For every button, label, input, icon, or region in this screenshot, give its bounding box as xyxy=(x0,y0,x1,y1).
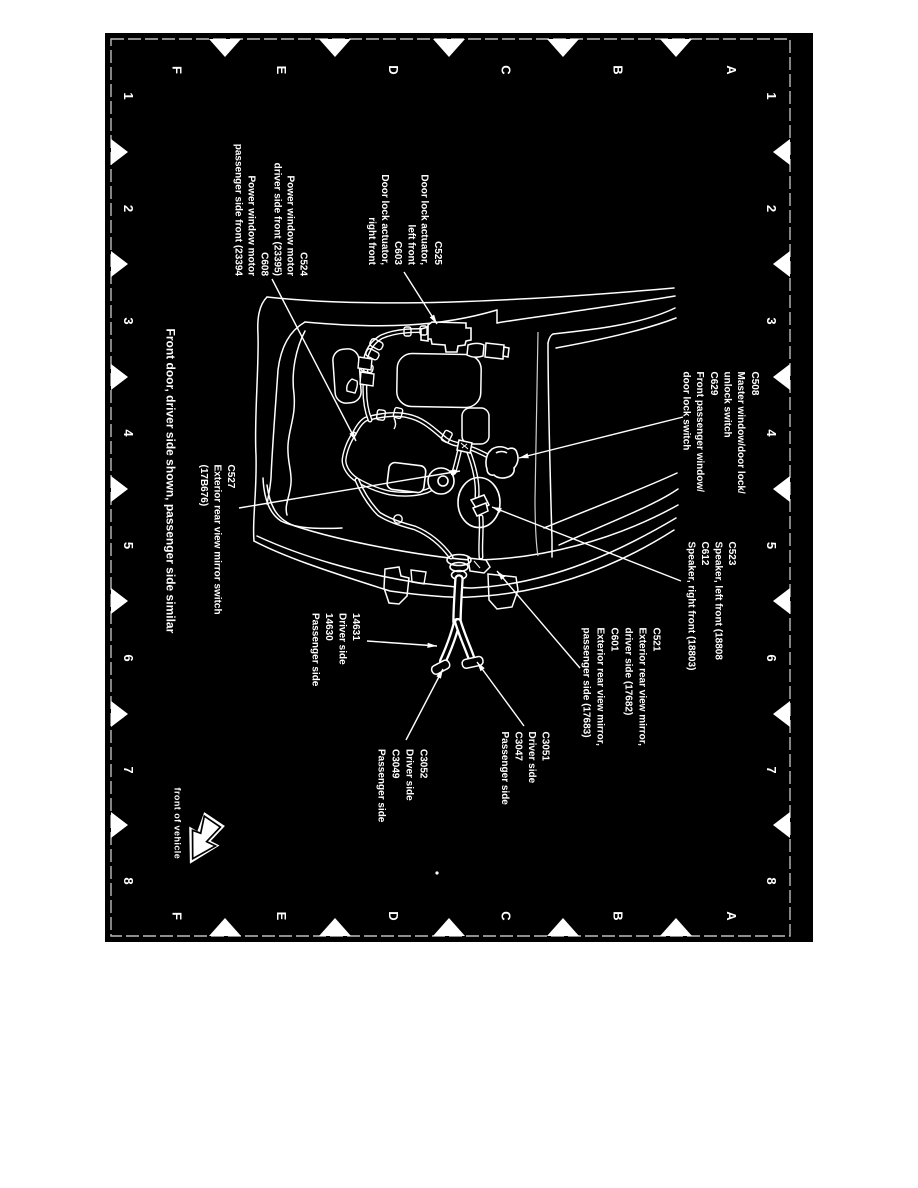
svg-text:4: 4 xyxy=(764,429,779,437)
svg-text:passenger side front (23394: passenger side front (23394 xyxy=(233,144,244,277)
svg-text:C525: C525 xyxy=(432,241,443,265)
svg-text:1: 1 xyxy=(121,92,136,99)
svg-text:4: 4 xyxy=(121,429,136,437)
svg-text:door lock switch: door lock switch xyxy=(680,372,691,451)
svg-text:C3047: C3047 xyxy=(512,732,523,762)
svg-text:A: A xyxy=(724,911,739,921)
svg-text:passenger side (17683): passenger side (17683) xyxy=(580,628,591,738)
svg-text:right front: right front xyxy=(366,217,377,265)
svg-text:C601: C601 xyxy=(608,628,619,652)
svg-text:Door lock actuator,: Door lock actuator, xyxy=(379,174,390,265)
svg-text:C: C xyxy=(499,911,514,921)
svg-text:left front: left front xyxy=(405,224,416,265)
svg-text:C524: C524 xyxy=(298,252,309,276)
svg-text:8: 8 xyxy=(121,877,136,884)
svg-text:A: A xyxy=(724,65,739,75)
svg-text:B: B xyxy=(611,65,626,74)
svg-text:Driver side: Driver side xyxy=(526,732,537,784)
svg-text:C3049: C3049 xyxy=(390,749,401,779)
svg-text:6: 6 xyxy=(764,654,779,661)
svg-text:C508: C508 xyxy=(749,372,760,396)
svg-text:Door lock actuator,: Door lock actuator, xyxy=(419,174,430,265)
svg-text:driver side front (23395): driver side front (23395) xyxy=(272,163,283,276)
svg-text:E: E xyxy=(274,66,289,75)
svg-text:7: 7 xyxy=(764,766,779,773)
svg-text:Front door, driver side shown,: Front door, driver side shown, passenger… xyxy=(163,329,177,634)
svg-text:D: D xyxy=(386,65,401,74)
svg-text:14630: 14630 xyxy=(323,613,334,641)
svg-text:8: 8 xyxy=(764,877,779,884)
svg-text:Exterior rear view mirror,: Exterior rear view mirror, xyxy=(594,628,605,747)
svg-text:C612: C612 xyxy=(699,542,710,566)
svg-text:2: 2 xyxy=(764,205,779,212)
svg-text:Driver side: Driver side xyxy=(404,749,415,801)
svg-text:C527: C527 xyxy=(225,465,236,489)
svg-text:front of vehicle: front of vehicle xyxy=(173,788,183,860)
svg-text:unlock switch: unlock switch xyxy=(722,372,733,438)
svg-text:6: 6 xyxy=(121,654,136,661)
svg-text:Front passenger window/: Front passenger window/ xyxy=(694,372,705,493)
svg-text:C523: C523 xyxy=(726,542,737,566)
svg-text:C521: C521 xyxy=(650,628,661,652)
svg-text:Passenger side: Passenger side xyxy=(499,732,510,806)
svg-text:Speaker, right front (18803): Speaker, right front (18803) xyxy=(685,542,696,671)
svg-text:C608: C608 xyxy=(259,252,270,276)
svg-text:Power window motor: Power window motor xyxy=(246,175,257,276)
svg-text:driver side (17682): driver side (17682) xyxy=(622,628,633,716)
svg-text:Driver side: Driver side xyxy=(336,613,347,665)
svg-text:C3052: C3052 xyxy=(418,749,429,779)
svg-text:F: F xyxy=(170,912,185,920)
svg-text:7: 7 xyxy=(121,766,136,773)
svg-text:D: D xyxy=(386,911,401,920)
svg-text:Master window/door lock/: Master window/door lock/ xyxy=(735,372,746,494)
svg-text:C: C xyxy=(499,65,514,75)
svg-text:Exterior rear view mirror swit: Exterior rear view mirror switch xyxy=(212,465,223,615)
svg-text:F: F xyxy=(170,66,185,74)
svg-text:14631: 14631 xyxy=(350,613,361,641)
svg-text:B: B xyxy=(611,911,626,920)
svg-text:C603: C603 xyxy=(392,241,403,265)
svg-text:E: E xyxy=(274,912,289,921)
svg-text:(17B676): (17B676) xyxy=(198,465,209,507)
svg-text:C3051: C3051 xyxy=(539,732,550,762)
svg-text:Speaker, left front (18808: Speaker, left front (18808 xyxy=(713,542,724,661)
svg-text:Power window motor: Power window motor xyxy=(285,175,296,276)
svg-text:2: 2 xyxy=(121,205,136,212)
svg-text:5: 5 xyxy=(764,542,779,549)
svg-text:Passenger side: Passenger side xyxy=(309,613,320,687)
svg-text:Passenger side: Passenger side xyxy=(376,749,387,823)
svg-text:5: 5 xyxy=(121,542,136,549)
svg-text:1: 1 xyxy=(764,92,779,99)
svg-text:Exterior rear view mirror,: Exterior rear view mirror, xyxy=(636,628,647,747)
svg-text:3: 3 xyxy=(121,317,136,324)
svg-text:3: 3 xyxy=(764,317,779,324)
svg-text:C629: C629 xyxy=(708,372,719,396)
